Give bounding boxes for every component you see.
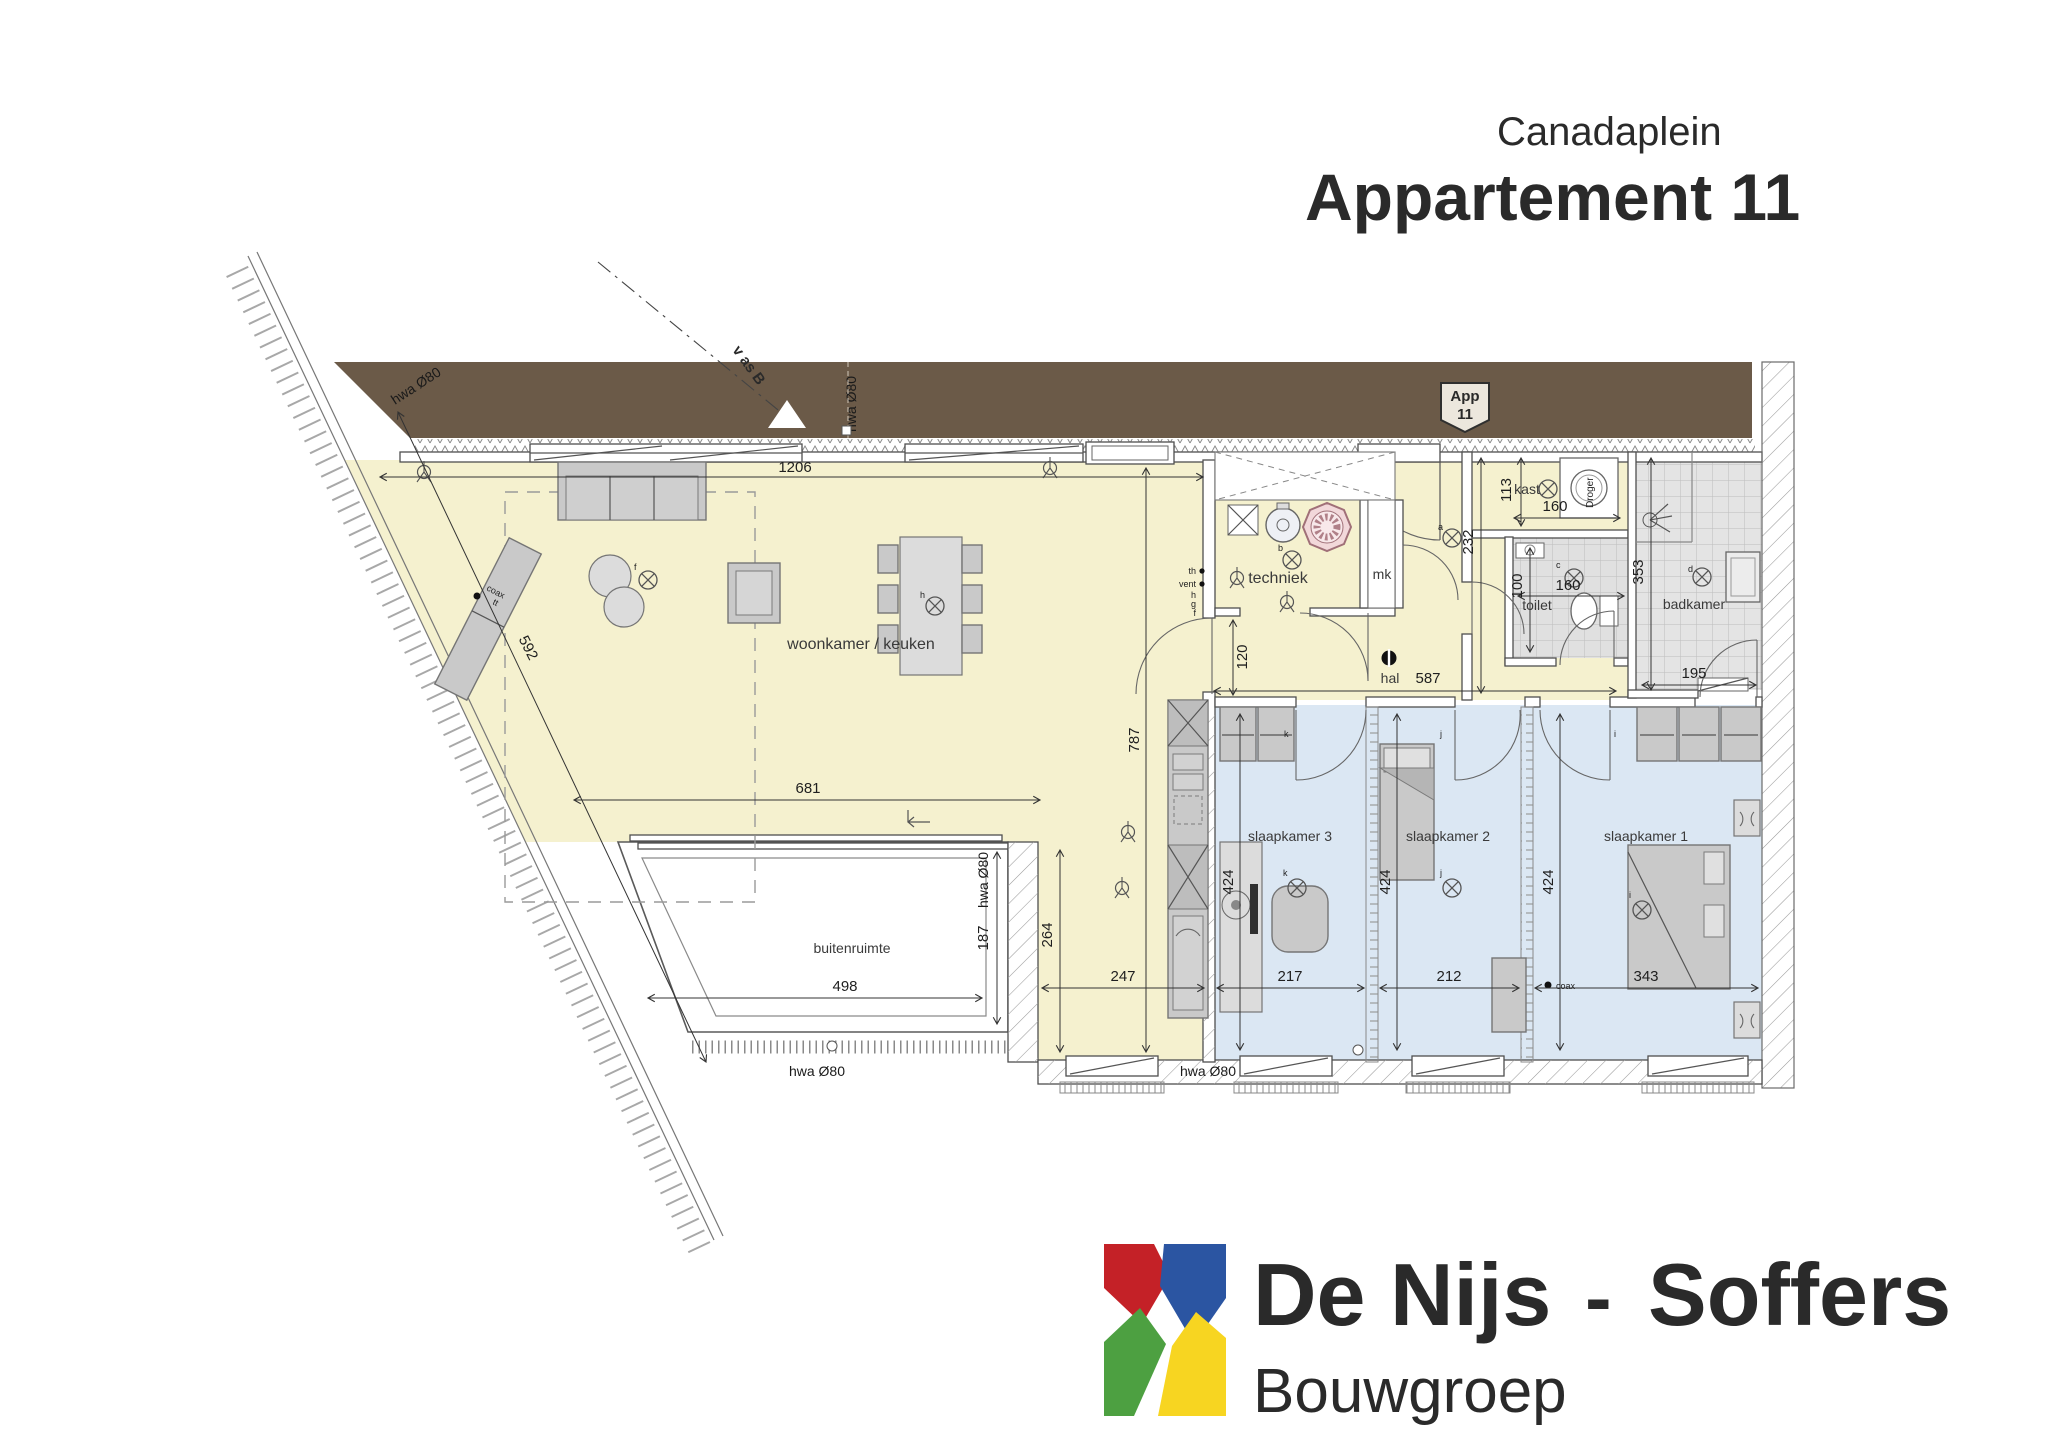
logo-separator: - [1585,1253,1612,1342]
project-title: Canadaplein [1497,110,1722,154]
dim-264: 264 [1039,922,1056,947]
dim-247: 247 [1110,968,1135,985]
logo-name-primary: De Nijs [1253,1245,1551,1344]
hwa-label-balcony: hwa Ø80 [975,852,991,908]
label-droger: Droger [1585,477,1596,508]
dim-232: 232 [1460,529,1477,554]
dim-113: 113 [1498,478,1515,502]
ann-b: b [1278,543,1283,553]
dim-498: 498 [832,978,857,995]
ann-k: k [1283,868,1288,878]
room-label-mk: mk [1373,566,1393,582]
dim-100: 100 [1509,573,1526,598]
room-label-buitenruimte: buitenruimte [813,940,890,956]
room-label-toilet: toilet [1522,597,1552,613]
dim-353: 353 [1630,559,1647,584]
hwa-pipe-icon [1353,1045,1363,1055]
sofa [558,462,706,520]
company-logo: De Nijs - Soffers Bouwgroep [1104,1244,1951,1426]
dim-195: 195 [1681,665,1706,682]
dim-1206: 1206 [778,459,811,476]
ann-d: d [1688,564,1693,574]
ann-i2: i [1614,729,1616,739]
hwa-riser-box [842,426,851,435]
sk2-bed [1380,744,1434,880]
room-label-slaapkamer3: slaapkamer 3 [1248,828,1332,844]
logo-subtitle: Bouwgroep [1253,1357,1567,1426]
dim-424-sk1: 424 [1540,869,1557,894]
door-top-living [1086,442,1174,464]
floor-plan-canvas: App 11 1206 681 498 787 264 247 217 212 … [0,0,2048,1439]
ann-c: c [1556,560,1561,570]
hwa-label-bottom-left: hwa Ø80 [789,1063,845,1079]
dim-160-kast: 160 [1542,498,1567,515]
logo-name-secondary: Soffers [1648,1245,1951,1344]
room-label-kast: kast [1514,481,1540,497]
dim-217: 217 [1277,968,1302,985]
logo-mark-icon [1104,1244,1226,1416]
window-top-living-2 [905,444,1083,462]
shaft-box [1215,452,1395,500]
party-wall-right [1762,362,1794,1088]
dim-212: 212 [1436,968,1461,985]
ann-h: h [920,590,925,600]
room-label-badkamer: badkamer [1663,596,1726,612]
ann-vent: vent [1179,579,1197,589]
ann-k2: k [1284,729,1289,739]
room-label-woonkamer: woonkamer / keuken [786,636,935,653]
room-label-slaapkamer2: slaapkamer 2 [1406,828,1490,844]
dim-424-sk2: 424 [1377,869,1394,894]
dim-587: 587 [1415,670,1440,687]
room-label-slaapkamer1: slaapkamer 1 [1604,828,1688,844]
hwa-label-bottom-right: hwa Ø80 [1180,1063,1236,1079]
dim-160-toilet: 160 [1555,577,1580,594]
room-label-techniek: techniek [1248,570,1309,587]
hwa-pipe-icon [827,1041,837,1051]
dim-187: 187 [975,925,992,950]
floor-plan-page: App 11 1206 681 498 787 264 247 217 212 … [0,0,2048,1439]
ann-th: th [1188,566,1196,576]
apartment-title: Appartement 11 [1305,160,1800,234]
armchair [728,563,780,623]
corridor-band [334,362,1752,438]
hwa-label-corridor: hwa Ø80 [843,376,859,432]
ann-coax-sk1: coax [1556,981,1576,991]
dim-343: 343 [1633,968,1658,985]
dim-787: 787 [1126,727,1143,752]
dim-681: 681 [795,780,820,797]
dim-120: 120 [1234,644,1251,669]
badge-line2: 11 [1457,406,1473,423]
ann-i: i [1629,890,1631,900]
sk1-wardrobe [1637,707,1761,761]
ann-j: j [1439,868,1442,878]
room-label-hal: hal [1381,670,1400,686]
dim-424-sk3: 424 [1220,869,1237,894]
kitchen-counter [1168,700,1208,1018]
app-badge: App 11 [1441,383,1489,432]
sk2-chest [1492,958,1526,1032]
ann-a: a [1438,522,1443,532]
window-top-living-1 [530,444,802,462]
badge-line1: App [1450,388,1479,405]
ann-j2: j [1439,729,1442,739]
